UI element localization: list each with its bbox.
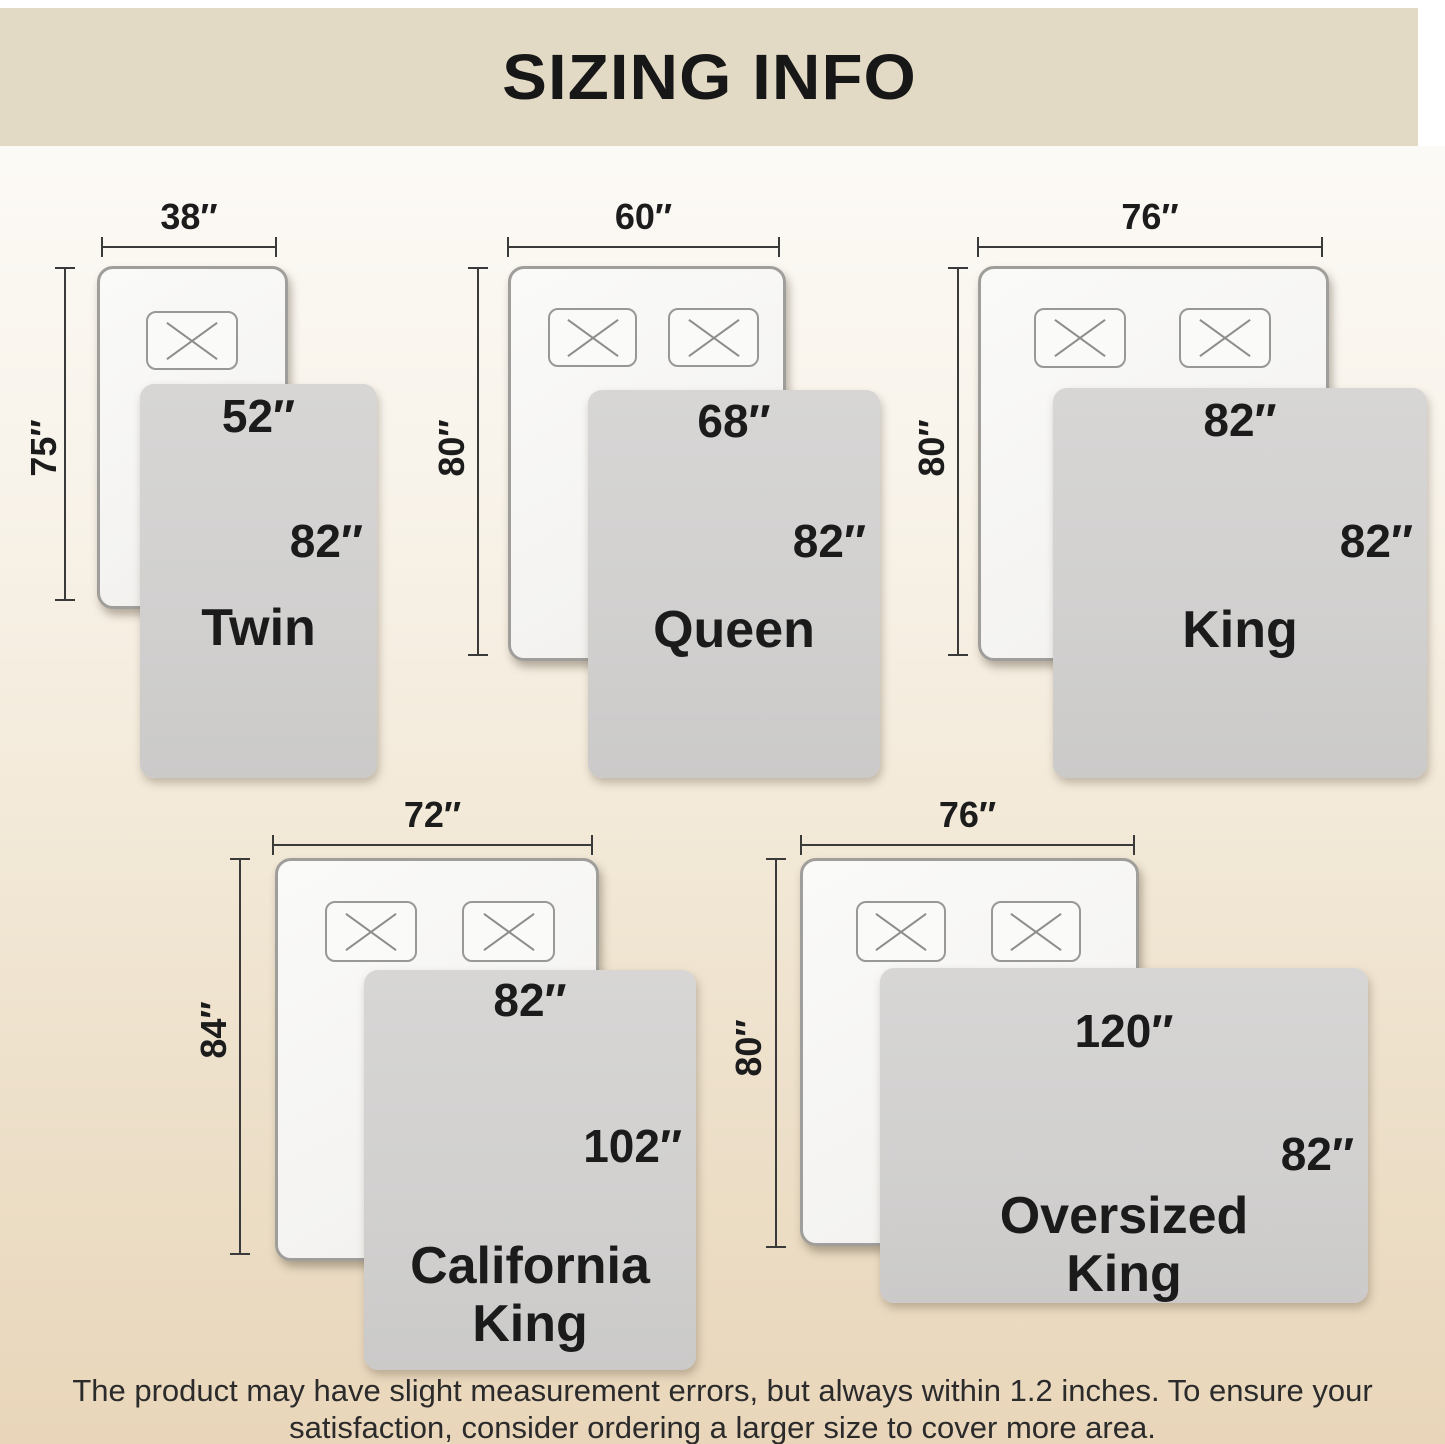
california-king-pillow-left [325, 901, 417, 962]
king-blanket-length-label: 82″ [1263, 514, 1413, 568]
queen-blanket-width-label: 68″ [588, 394, 880, 448]
king-length-dim-line [957, 267, 959, 656]
king-name-label: King [1053, 602, 1427, 658]
queen-pillow-left [548, 308, 637, 367]
king-pillow-right [1179, 308, 1271, 368]
twin-blanket [140, 384, 377, 778]
california-king-name-label: California King [364, 1237, 696, 1353]
king-length-label: 80″ [910, 403, 954, 493]
twin-name-label: Twin [140, 600, 377, 656]
twin-blanket-width-label: 52″ [140, 389, 377, 443]
oversized-king-width-label: 76″ [800, 794, 1135, 836]
queen-blanket [588, 390, 880, 778]
california-king-length-label: 84″ [192, 985, 236, 1075]
x-mark-icon [565, 318, 621, 358]
queen-width-label: 60″ [507, 196, 780, 238]
queen-blanket-length-label: 82″ [716, 514, 866, 568]
disclaimer-line2: satisfaction, consider ordering a larger… [0, 1409, 1445, 1444]
oversized-king-blanket-length-label: 82″ [1204, 1127, 1354, 1181]
california-king-blanket-length-label: 102″ [532, 1119, 682, 1173]
oversized-king-length-dim-line [775, 858, 777, 1248]
x-mark-icon [1197, 318, 1253, 358]
sizing-info-page: SIZING INFO 38″ 75″ 52″ 82″ Twin 60″ 80″… [0, 0, 1445, 1444]
page-title: SIZING INFO [502, 40, 917, 114]
oversized-king-pillow-left [856, 901, 946, 962]
oversized-king-pillow-right [991, 901, 1081, 962]
california-king-width-dim-line [272, 844, 593, 846]
x-mark-icon [481, 912, 537, 952]
oversized-king-length-label: 80″ [727, 1003, 771, 1093]
king-blanket-width-label: 82″ [1053, 393, 1427, 447]
twin-pillow [146, 311, 238, 370]
oversized-king-name-line2: King [880, 1245, 1368, 1303]
queen-name-label: Queen [588, 602, 880, 658]
king-width-label: 76″ [977, 196, 1323, 238]
oversized-king-name-line1: Oversized [880, 1187, 1368, 1245]
disclaimer-line1: The product may have slight measurement … [0, 1372, 1445, 1409]
x-mark-icon [1052, 318, 1108, 358]
oversized-king-name-label: Oversized King [880, 1187, 1368, 1303]
california-king-pillow-right [462, 901, 555, 962]
queen-pillow-right [668, 308, 759, 367]
header-bar: SIZING INFO [0, 8, 1418, 146]
twin-width-label: 38″ [101, 196, 277, 238]
king-pillow-left [1034, 308, 1126, 368]
x-mark-icon [343, 912, 399, 952]
queen-width-dim-line [507, 246, 780, 248]
california-king-name-line2: King [364, 1295, 696, 1353]
oversized-king-width-dim-line [800, 844, 1135, 846]
california-king-length-dim-line [239, 858, 241, 1255]
twin-blanket-length-label: 82″ [213, 514, 363, 568]
king-width-dim-line [977, 246, 1323, 248]
twin-length-label: 75″ [22, 403, 66, 493]
x-mark-icon [873, 912, 929, 952]
queen-length-label: 80″ [430, 403, 474, 493]
california-king-width-label: 72″ [272, 794, 593, 836]
x-mark-icon [1008, 912, 1064, 952]
x-mark-icon [164, 321, 220, 361]
disclaimer-text: The product may have slight measurement … [0, 1372, 1445, 1444]
oversized-king-blanket-width-label: 120″ [880, 1004, 1368, 1058]
twin-width-dim-line [101, 246, 277, 248]
california-king-blanket-width-label: 82″ [364, 973, 696, 1027]
x-mark-icon [686, 318, 742, 358]
queen-length-dim-line [477, 267, 479, 656]
california-king-name-line1: California [364, 1237, 696, 1295]
